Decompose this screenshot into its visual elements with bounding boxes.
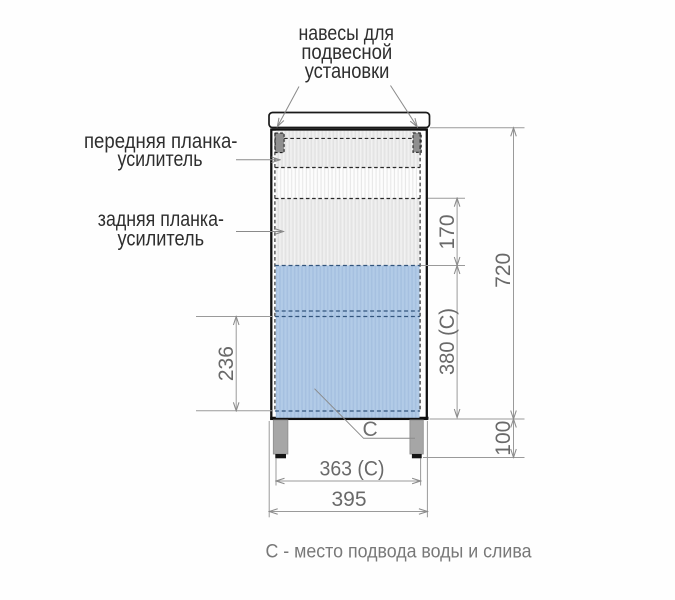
svg-text:усилитель: усилитель [118, 228, 205, 251]
svg-text:236: 236 [215, 346, 238, 381]
svg-text:170: 170 [436, 214, 459, 249]
svg-text:720: 720 [492, 253, 515, 288]
svg-text:100: 100 [492, 421, 515, 456]
svg-text:установки: установки [305, 60, 390, 83]
svg-text:380 (С): 380 (С) [436, 308, 459, 375]
svg-text:С - место подвода воды и слива: С - место подвода воды и слива [266, 541, 532, 563]
svg-text:363 (С): 363 (С) [320, 458, 385, 481]
svg-text:усилитель: усилитель [118, 148, 203, 171]
svg-text:395: 395 [331, 488, 366, 511]
svg-text:С: С [363, 418, 378, 441]
